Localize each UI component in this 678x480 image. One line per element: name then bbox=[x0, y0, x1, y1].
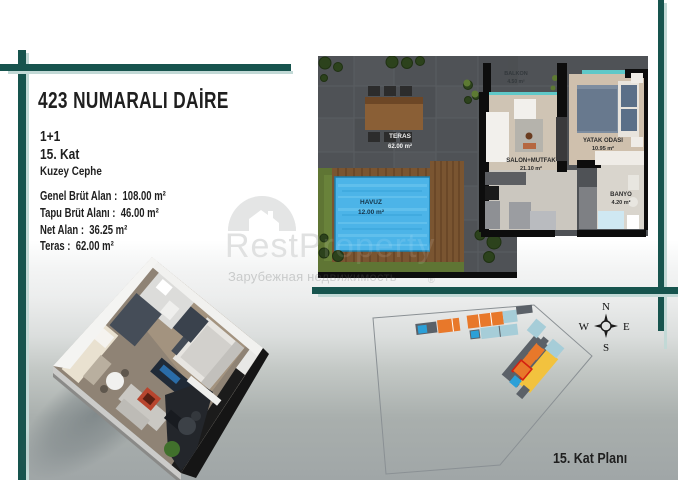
svg-text:S: S bbox=[603, 342, 609, 354]
svg-text:N: N bbox=[602, 301, 610, 313]
svg-text:E: E bbox=[623, 321, 630, 333]
svg-text:W: W bbox=[579, 321, 590, 333]
